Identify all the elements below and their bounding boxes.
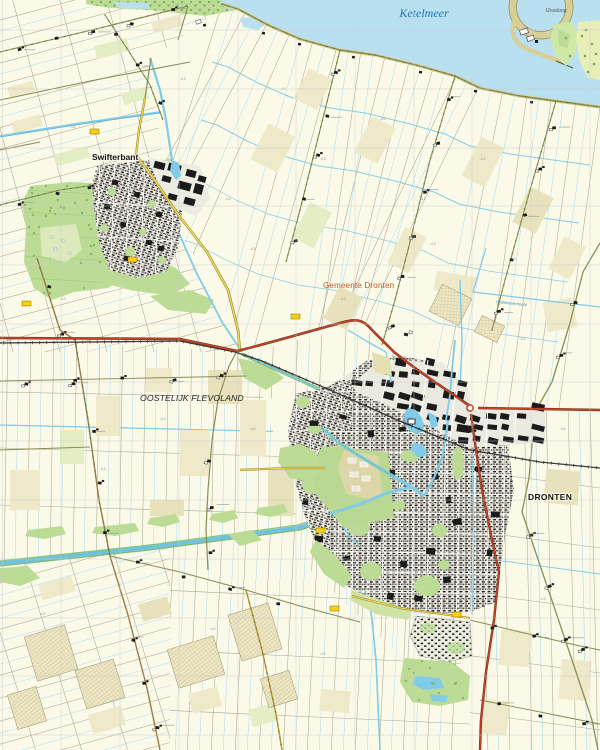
svg-text:-4.2: -4.2 (250, 427, 256, 431)
svg-text:-4.2: -4.2 (180, 77, 186, 81)
svg-text:IJsseloog: IJsseloog (545, 8, 566, 14)
svg-text:-4.2: -4.2 (320, 157, 326, 161)
svg-text:-4.2: -4.2 (130, 167, 136, 171)
svg-text:-4.2: -4.2 (540, 597, 546, 601)
svg-text:-4.2: -4.2 (420, 197, 426, 201)
svg-text:-4.2: -4.2 (560, 427, 566, 431)
svg-text:-4.2: -4.2 (320, 652, 326, 656)
svg-text:Gemeente Dronten: Gemeente Dronten (323, 281, 394, 290)
svg-text:-4.2: -4.2 (160, 417, 166, 421)
svg-text:-4.2: -4.2 (510, 257, 516, 261)
svg-text:-4.2: -4.2 (430, 242, 436, 246)
svg-text:-4.2: -4.2 (40, 612, 46, 616)
svg-text:-4.2: -4.2 (210, 627, 216, 631)
svg-text:OOSTELIJK FLEVOLAND: OOSTELIJK FLEVOLAND (140, 393, 244, 403)
svg-text:-4.2: -4.2 (340, 297, 346, 301)
svg-text:-4.2: -4.2 (250, 247, 256, 251)
svg-text:-4.2: -4.2 (100, 467, 106, 471)
svg-text:-4.2: -4.2 (520, 337, 526, 341)
svg-text:-4.2: -4.2 (225, 197, 231, 201)
svg-text:-4.2: -4.2 (380, 117, 386, 121)
svg-text:DRONTEN: DRONTEN (528, 492, 572, 502)
svg-text:Ketelmeer: Ketelmeer (398, 6, 449, 20)
svg-text:Swifterbant: Swifterbant (92, 152, 138, 162)
svg-text:-4.2: -4.2 (70, 125, 76, 129)
svg-text:-4.2: -4.2 (480, 157, 486, 161)
